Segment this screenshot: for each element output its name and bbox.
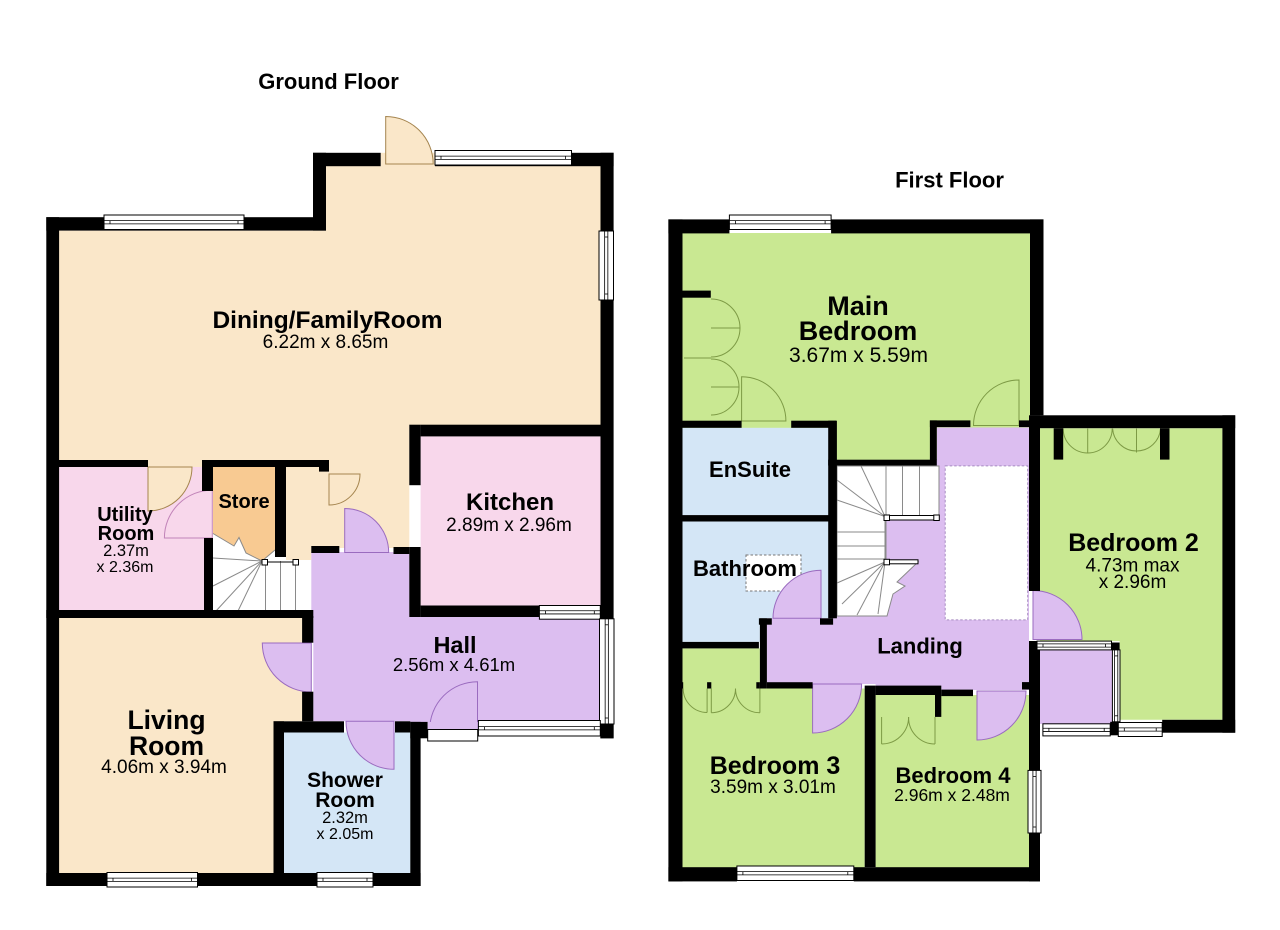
svg-text:Bedroom 3: Bedroom 3 xyxy=(710,752,841,780)
svg-text:2.96m x 2.48m: 2.96m x 2.48m xyxy=(894,785,1010,805)
svg-text:Dining/FamilyRoom: Dining/FamilyRoom xyxy=(212,307,442,334)
svg-text:x 2.36m: x 2.36m xyxy=(97,559,154,576)
svg-text:Bedroom 2: Bedroom 2 xyxy=(1068,529,1199,557)
svg-text:Ground Floor: Ground Floor xyxy=(258,69,399,94)
svg-text:3.67m x 5.59m: 3.67m x 5.59m xyxy=(789,344,928,367)
svg-text:Kitchen: Kitchen xyxy=(466,489,554,516)
svg-text:2.56m x 4.61m: 2.56m x 4.61m xyxy=(393,654,515,675)
svg-text:First Floor: First Floor xyxy=(895,168,1004,193)
svg-text:2.37m: 2.37m xyxy=(103,542,149,560)
svg-text:2.89m x 2.96m: 2.89m x 2.96m xyxy=(446,515,572,536)
svg-text:Bedroom: Bedroom xyxy=(799,316,918,346)
svg-text:Store: Store xyxy=(218,491,269,513)
svg-text:x 2.05m: x 2.05m xyxy=(317,826,374,843)
svg-text:Bathroom: Bathroom xyxy=(693,556,797,581)
svg-text:4.06m x 3.94m: 4.06m x 3.94m xyxy=(101,757,227,778)
svg-text:Landing: Landing xyxy=(877,634,963,659)
svg-text:6.22m x 8.65m: 6.22m x 8.65m xyxy=(263,332,389,353)
svg-text:3.59m x 3.01m: 3.59m x 3.01m xyxy=(710,777,836,798)
svg-text:2.32m: 2.32m xyxy=(322,809,368,827)
svg-text:EnSuite: EnSuite xyxy=(709,457,791,482)
svg-text:x 2.96m: x 2.96m xyxy=(1099,572,1167,593)
